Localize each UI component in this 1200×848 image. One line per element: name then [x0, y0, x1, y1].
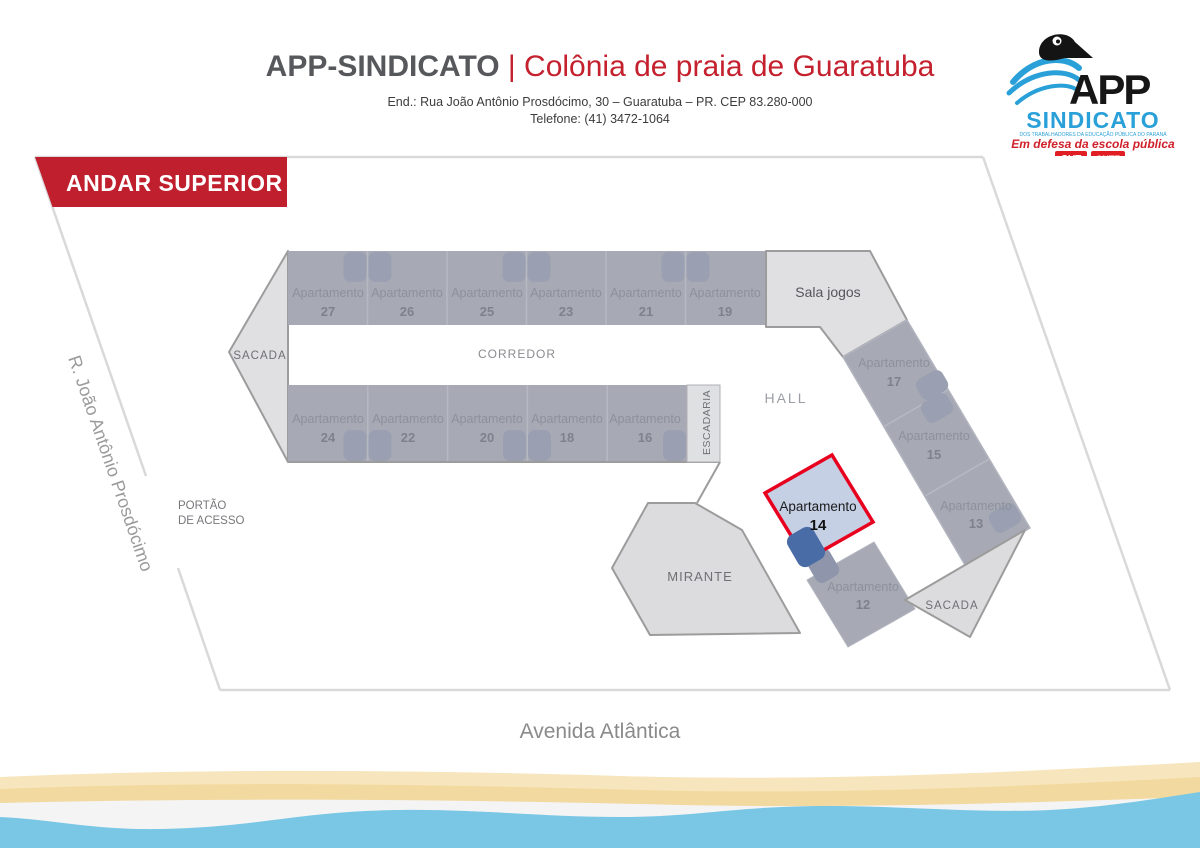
- logo-sindicato-text: SINDICATO: [1026, 107, 1159, 133]
- svg-text:DE ACESSO: DE ACESSO: [178, 515, 245, 527]
- apartments-top-row: Apartamento 27 Apartamento 26 Apartament…: [288, 251, 765, 325]
- svg-text:Apartamento: Apartamento: [689, 286, 761, 300]
- room-escadaria: ESCADARIA: [687, 385, 720, 503]
- svg-text:Apartamento: Apartamento: [531, 412, 603, 426]
- title-colonia: | Colônia de praia de Guaratuba: [508, 50, 934, 83]
- beach-decoration: [0, 762, 1200, 848]
- svg-text:CUT: CUT: [1061, 154, 1082, 156]
- svg-text:20: 20: [480, 430, 494, 445]
- banner-andar-superior: ANDAR SUPERIOR: [35, 157, 287, 207]
- svg-text:12: 12: [856, 597, 870, 612]
- svg-text:Apartamento: Apartamento: [451, 412, 523, 426]
- svg-text:16: 16: [638, 430, 652, 445]
- svg-text:15: 15: [927, 447, 941, 462]
- sala-jogos-label: Sala jogos: [795, 284, 860, 300]
- svg-text:21: 21: [639, 304, 653, 319]
- mirante-label: MIRANTE: [667, 569, 733, 584]
- avenida-atlantica-label: Avenida Atlântica: [520, 720, 681, 743]
- app-sindicato-logo: APP SINDICATO DOS TRABALHADORES DA EDUCA…: [1005, 26, 1175, 156]
- apartments-wing: Apartamento 17 Apartamento 15 Apartament…: [843, 320, 1030, 565]
- svg-text:Apartamento: Apartamento: [530, 286, 602, 300]
- page: APP-SINDICATO | Colônia de praia de Guar…: [0, 0, 1200, 848]
- svg-text:Apartamento: Apartamento: [940, 499, 1012, 513]
- svg-text:14: 14: [810, 517, 827, 534]
- svg-text:23: 23: [559, 304, 573, 319]
- svg-text:PORTÃO: PORTÃO: [178, 499, 226, 512]
- hall-label: HALL: [764, 390, 807, 406]
- svg-text:Apartamento: Apartamento: [451, 286, 523, 300]
- svg-text:Apartamento: Apartamento: [898, 429, 970, 443]
- sacada-right-label: SACADA: [925, 600, 978, 612]
- svg-text:CNTE: CNTE: [1096, 154, 1121, 156]
- cut-badge: CUT: [1055, 151, 1087, 156]
- banner-label: ANDAR SUPERIOR: [66, 170, 283, 196]
- logo-app-text: APP: [1069, 66, 1150, 113]
- svg-text:25: 25: [480, 304, 494, 319]
- svg-text:19: 19: [718, 304, 732, 319]
- apartments-bottom-row: Apartamento 24 Apartamento 22 Apartament…: [288, 385, 720, 462]
- svg-text:Apartamento: Apartamento: [372, 412, 444, 426]
- room-sacada-left: SACADA: [229, 251, 288, 462]
- svg-text:Apartamento: Apartamento: [858, 356, 930, 370]
- svg-text:13: 13: [969, 516, 983, 531]
- logo-svg: APP SINDICATO DOS TRABALHADORES DA EDUCA…: [1005, 26, 1175, 156]
- sacada-left-label: SACADA: [233, 350, 286, 362]
- svg-text:22: 22: [401, 430, 415, 445]
- street-left-label: R. João Antônio Prosdócimo: [64, 353, 157, 574]
- svg-text:27: 27: [321, 304, 335, 319]
- svg-text:17: 17: [887, 374, 901, 389]
- svg-text:Apartamento: Apartamento: [371, 286, 443, 300]
- portao-de-acesso-label: PORTÃO DE ACESSO: [178, 499, 245, 527]
- svg-text:Apartamento: Apartamento: [779, 499, 856, 514]
- room-mirante: MIRANTE: [612, 503, 800, 635]
- svg-text:Apartamento: Apartamento: [610, 286, 682, 300]
- svg-text:26: 26: [400, 304, 414, 319]
- escadaria-label: ESCADARIA: [701, 390, 713, 455]
- logo-slogan: Em defesa da escola pública: [1011, 137, 1175, 151]
- svg-text:Apartamento: Apartamento: [827, 580, 899, 594]
- svg-text:24: 24: [321, 430, 336, 445]
- svg-text:Apartamento: Apartamento: [609, 412, 681, 426]
- svg-text:18: 18: [560, 430, 574, 445]
- svg-text:Apartamento: Apartamento: [292, 412, 364, 426]
- cnte-badge: CNTE: [1091, 151, 1125, 156]
- svg-text:Apartamento: Apartamento: [292, 286, 364, 300]
- title-app-sindicato: APP-SINDICATO: [266, 50, 508, 83]
- corredor-label: CORREDOR: [478, 347, 556, 361]
- bird-head-icon: [1039, 34, 1093, 60]
